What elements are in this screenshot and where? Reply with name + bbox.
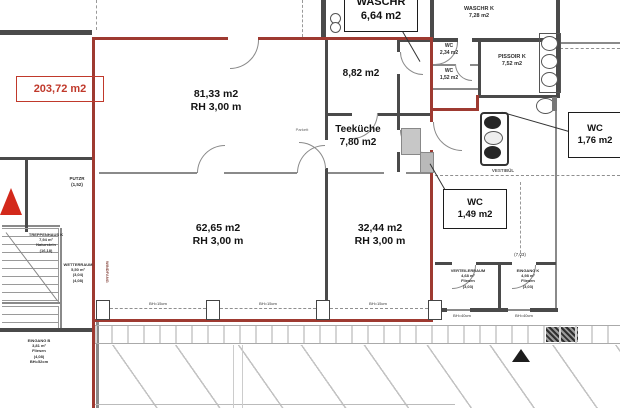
toilet-icon bbox=[484, 131, 503, 145]
room-area: 7,80 m2 bbox=[322, 137, 394, 150]
room-dim: (3,03) bbox=[504, 284, 552, 289]
curb-line bbox=[95, 404, 455, 405]
door-arc bbox=[433, 122, 462, 151]
room-label-treppenhaus: TREPPENHAUS K 7,94 m² Naturstein (16,18) bbox=[24, 232, 68, 253]
red-boundary bbox=[92, 37, 228, 40]
wall bbox=[397, 74, 400, 130]
unit-area-badge: 203,72 m2 bbox=[16, 76, 104, 102]
room-label-windfang: WINDFANG bbox=[100, 250, 110, 294]
glass-front-line bbox=[220, 308, 316, 309]
wall bbox=[378, 113, 433, 116]
leader-line bbox=[502, 112, 570, 132]
sink-icon bbox=[541, 36, 558, 51]
section-line bbox=[435, 175, 620, 176]
room-height: RH 3,00 m bbox=[330, 235, 430, 248]
room-dim: (3,03) bbox=[442, 284, 494, 289]
room-height: RH 3,00 m bbox=[162, 235, 274, 248]
red-boundary bbox=[433, 108, 478, 111]
wall bbox=[530, 308, 558, 312]
room-label-wc2: WC 1,52 m2 bbox=[434, 68, 464, 81]
room-area: 7,28 m2 bbox=[450, 13, 508, 20]
wall bbox=[2, 302, 60, 304]
room-area: 62,65 m2 bbox=[162, 222, 274, 235]
wall bbox=[560, 42, 620, 44]
room-name: VESTIBÜL bbox=[482, 168, 524, 173]
dim-front-sill: BH=15cm bbox=[356, 301, 400, 306]
callout-wc-right: WC 1,76 m2 bbox=[568, 112, 620, 158]
wall bbox=[498, 262, 501, 308]
callout-waschr: WASCHR 6,64 m2 bbox=[344, 0, 418, 32]
wall bbox=[224, 172, 297, 174]
room-label-882: 8,82 m2 bbox=[330, 68, 392, 79]
red-boundary bbox=[430, 150, 433, 322]
toilet-icon bbox=[484, 146, 501, 159]
room-label-verteilerraum: VERTEILERRAUM 4,68 m² Fliesen (3,03) bbox=[442, 268, 494, 289]
dim-front-sill: BH=15cm bbox=[246, 301, 290, 306]
dimension-line bbox=[520, 182, 521, 258]
room-name: PISSOIR K bbox=[486, 54, 538, 61]
room-label-hall-top: 81,33 m2 RH 3,00 m bbox=[160, 88, 272, 114]
room-dim: (4,08) bbox=[56, 278, 100, 283]
dim-front-sill: BH=15cm bbox=[136, 301, 180, 306]
dashed-line bbox=[96, 0, 97, 30]
wall bbox=[555, 98, 557, 310]
room-label-teekueche: Teeküche 7,80 m2 bbox=[322, 124, 394, 149]
wall bbox=[328, 172, 384, 174]
door-arc bbox=[400, 52, 423, 75]
dim-value: (7,03) bbox=[506, 252, 534, 257]
glass-front-line bbox=[330, 308, 428, 309]
room-area: 1,52 m2 bbox=[434, 75, 464, 82]
callout-wc-mid: WC 1,49 m2 bbox=[443, 189, 507, 229]
shaft bbox=[401, 128, 421, 155]
dim-entry-sill: BH=40cm bbox=[506, 313, 542, 318]
window-pillar bbox=[206, 300, 220, 320]
wall bbox=[99, 172, 197, 174]
shaft bbox=[420, 152, 434, 173]
wall bbox=[325, 113, 352, 116]
room-height: RH 3,00 m bbox=[160, 101, 272, 114]
callout-wc-mid-name: WC bbox=[444, 197, 506, 209]
red-boundary bbox=[95, 319, 431, 322]
wall bbox=[536, 262, 556, 265]
room-label-eingang-b: EINGANG B 3,81 m² Fliesen (4,08) BH=52cm bbox=[16, 338, 62, 364]
room-label-putzr: PUTZR (1,52) bbox=[60, 176, 94, 187]
sink-icon bbox=[541, 72, 558, 87]
room-area: 81,33 m2 bbox=[160, 88, 272, 101]
room-name: WINDFANG bbox=[105, 250, 110, 294]
lane-line bbox=[242, 345, 243, 408]
room-dim: (1,52) bbox=[60, 182, 94, 188]
room-label-eingang-k: EINGANG K 4,98 m² Fliesen (3,03) bbox=[504, 268, 552, 289]
window bbox=[508, 309, 530, 311]
toilet-icon bbox=[484, 116, 501, 129]
dim-value: BH=15cm bbox=[356, 301, 400, 306]
room-name: Teeküche bbox=[322, 124, 394, 137]
callout-wc-right-name: WC bbox=[569, 123, 620, 135]
room-label-wetterraum: WETTERRAUM 5,50 m² (3,04) (4,08) bbox=[56, 262, 100, 283]
unit-area-value: 203,72 m2 bbox=[34, 83, 87, 95]
room-area: 32,44 m2 bbox=[330, 222, 430, 235]
fixture-icon bbox=[330, 22, 341, 33]
door-arc bbox=[197, 145, 225, 173]
wall bbox=[25, 157, 28, 232]
callout-wc-mid-area: 1,49 m2 bbox=[444, 209, 506, 221]
sink-icon bbox=[541, 54, 558, 69]
parking-stripes bbox=[95, 345, 620, 408]
floor-note-parkett: Parkett bbox=[291, 127, 313, 132]
dim-value: BH=40cm bbox=[506, 313, 542, 318]
dim-value: BH=40cm bbox=[444, 313, 480, 318]
dashed-line bbox=[560, 48, 620, 49]
window-pillar bbox=[316, 300, 330, 320]
wall bbox=[433, 88, 478, 90]
wall bbox=[0, 328, 95, 332]
wall bbox=[0, 157, 94, 160]
dim-value: BH=15cm bbox=[136, 301, 180, 306]
room-sill: BH=52cm bbox=[16, 359, 62, 364]
wall bbox=[430, 0, 434, 38]
room-label-pissoir: PISSOIR K 7,52 m2 bbox=[486, 54, 538, 68]
wall bbox=[397, 152, 400, 172]
callout-waschr-name: WASCHR bbox=[345, 0, 417, 9]
dim-entry-sill: BH=40cm bbox=[444, 313, 480, 318]
dashed-line bbox=[302, 0, 303, 37]
red-triangle-marker bbox=[0, 188, 22, 215]
wall bbox=[470, 308, 508, 312]
door-arc bbox=[230, 40, 259, 69]
wall bbox=[435, 262, 452, 265]
room-label-hall-bl: 62,65 m2 RH 3,00 m bbox=[162, 222, 274, 248]
wall bbox=[321, 0, 326, 40]
room-label-waschr-k: WASCHR K 7,28 m2 bbox=[450, 6, 508, 20]
wall bbox=[325, 168, 328, 322]
wall bbox=[478, 38, 481, 95]
staircase bbox=[2, 306, 59, 328]
room-label-vestibuel: VESTIBÜL bbox=[482, 168, 524, 173]
room-name: WASCHR K bbox=[450, 6, 508, 13]
room-label-hall-br: 32,44 m2 RH 3,00 m bbox=[330, 222, 430, 248]
window-pillar bbox=[428, 300, 442, 320]
window bbox=[447, 309, 470, 311]
room-dim: (16,18) bbox=[24, 248, 68, 253]
callout-waschr-area: 6,64 m2 bbox=[345, 9, 417, 23]
red-boundary bbox=[476, 95, 479, 111]
callout-wc-right-area: 1,76 m2 bbox=[569, 135, 620, 147]
window-pillar bbox=[96, 300, 110, 320]
lane-line bbox=[233, 345, 234, 408]
dim-value: BH=15cm bbox=[246, 301, 290, 306]
floor-plan: WASCHR 6,64 m2 WC 1,76 m2 WC 1,49 m2 203… bbox=[0, 0, 620, 410]
wall bbox=[2, 225, 60, 227]
toilet-tank bbox=[552, 97, 557, 111]
sidewalk bbox=[95, 325, 620, 344]
floor-note: Parkett bbox=[291, 127, 313, 132]
room-label-wc1: WC 2,34 m2 bbox=[434, 43, 464, 56]
wall bbox=[0, 30, 92, 35]
glass-front-line bbox=[110, 308, 206, 309]
dim-front-span: (7,03) bbox=[506, 252, 534, 257]
wall bbox=[476, 262, 512, 265]
room-area: 2,34 m2 bbox=[434, 50, 464, 57]
room-area: 8,82 m2 bbox=[330, 68, 392, 79]
room-area: 7,52 m2 bbox=[486, 61, 538, 68]
